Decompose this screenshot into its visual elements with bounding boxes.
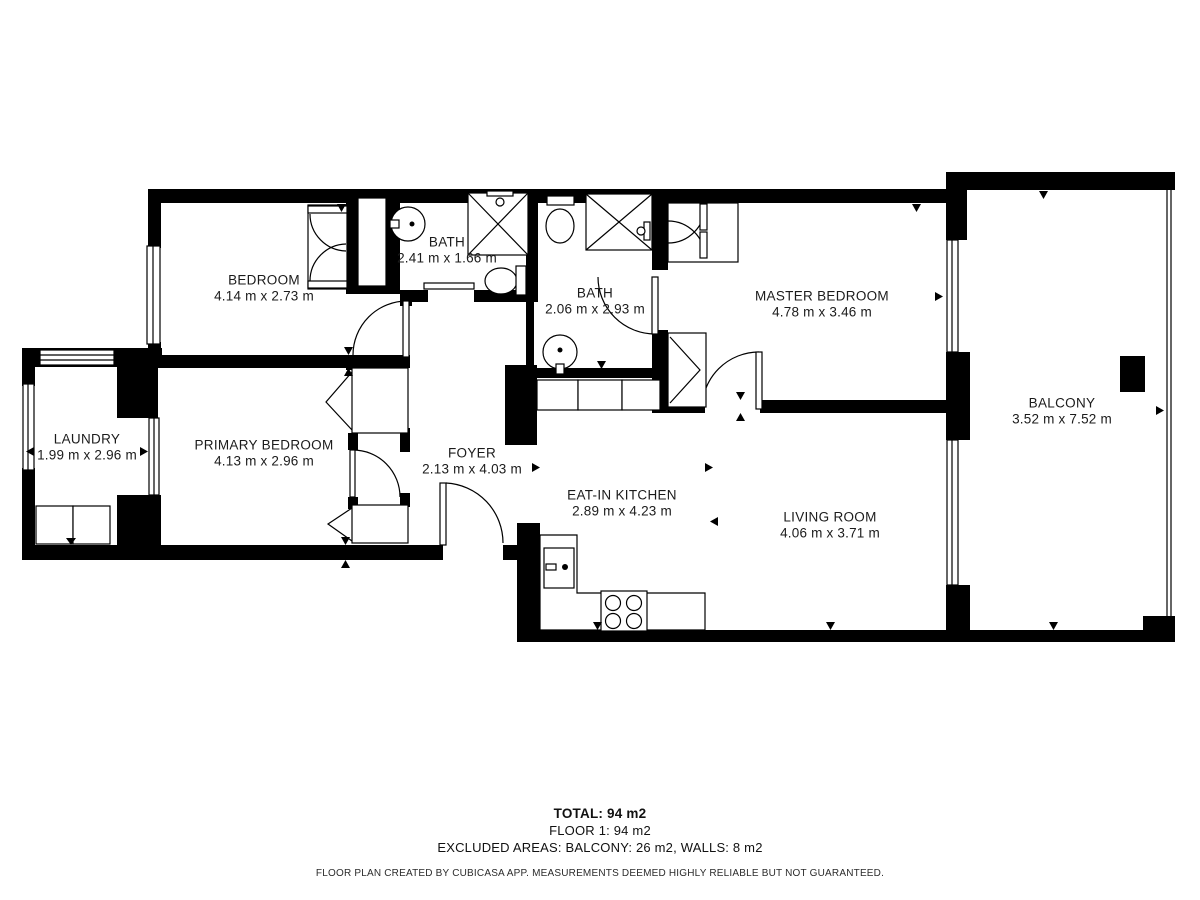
stove-icon (601, 591, 647, 631)
room-dimensions: 4.13 m x 2.96 m (194, 454, 333, 470)
kitchen-counter (540, 535, 705, 631)
primary-closet-bottom (328, 505, 408, 543)
room-label-laundry: LAUNDRY 1.99 m x 2.96 m (37, 432, 137, 465)
primary-bedroom-door (350, 450, 400, 497)
hall-closet (358, 198, 386, 286)
entry-door (440, 483, 503, 545)
room-name: EAT-IN KITCHEN (567, 488, 677, 504)
room-label-bedroom: BEDROOM 4.14 m x 2.73 m (214, 273, 314, 306)
room-label-foyer: FOYER 2.13 m x 4.03 m (422, 446, 522, 479)
bath2-shower-icon (586, 194, 652, 250)
room-dimensions: 1.99 m x 2.96 m (37, 448, 137, 464)
room-label-living-room: LIVING ROOM 4.06 m x 3.71 m (780, 510, 880, 543)
kitchen-cabinets (537, 380, 660, 410)
room-label-bath-1: BATH 2.41 m x 1.66 m (397, 235, 497, 268)
room-label-master-bedroom: MASTER BEDROOM 4.78 m x 3.46 m (755, 289, 889, 322)
room-label-eat-in-kitchen: EAT-IN KITCHEN 2.89 m x 4.23 m (567, 488, 677, 521)
primary-closet-top (326, 368, 408, 433)
laundry-top-window (40, 350, 114, 365)
bath1-toilet-icon (485, 266, 526, 295)
room-dimensions: 2.89 m x 4.23 m (567, 504, 677, 520)
room-dimensions: 4.78 m x 3.46 m (755, 305, 889, 321)
area-summary: TOTAL: 94 m2 FLOOR 1: 94 m2 EXCLUDED ARE… (0, 806, 1200, 855)
room-name: FOYER (422, 446, 522, 462)
room-dimensions: 2.13 m x 4.03 m (422, 462, 522, 478)
bedroom-door (353, 301, 409, 357)
windows (23, 190, 1171, 632)
room-name: MASTER BEDROOM (755, 289, 889, 305)
room-name: BEDROOM (214, 273, 314, 289)
bath-sliding-door (424, 283, 474, 289)
room-name: BATH (397, 235, 497, 251)
master-closet-bottom (668, 333, 706, 407)
room-dimensions: 4.06 m x 3.71 m (780, 526, 880, 542)
total-area: TOTAL: 94 m2 (0, 806, 1200, 821)
floor-plan-drawing (0, 0, 1200, 900)
room-name: PRIMARY BEDROOM (194, 438, 333, 454)
master-closet-top (668, 203, 738, 262)
room-name: LAUNDRY (37, 432, 137, 448)
room-dimensions: 3.52 m x 7.52 m (1012, 412, 1112, 428)
disclaimer-text: FLOOR PLAN CREATED BY CUBICASA APP. MEAS… (0, 868, 1200, 879)
floor-plan-page: BEDROOM 4.14 m x 2.73 m BATH 2.41 m x 1.… (0, 0, 1200, 900)
bath2-toilet-icon (546, 196, 574, 243)
floor-area: FLOOR 1: 94 m2 (0, 823, 1200, 838)
excluded-areas: EXCLUDED AREAS: BALCONY: 26 m2, WALLS: 8… (0, 840, 1200, 855)
laundry-machines-icon (36, 506, 110, 545)
room-dimensions: 4.14 m x 2.73 m (214, 289, 314, 305)
room-name: LIVING ROOM (780, 510, 880, 526)
room-label-balcony: BALCONY 3.52 m x 7.52 m (1012, 396, 1112, 429)
room-label-primary-bedroom: PRIMARY BEDROOM 4.13 m x 2.96 m (194, 438, 333, 471)
room-name: BALCONY (1012, 396, 1112, 412)
master-bedroom-door (702, 352, 762, 409)
room-dimensions: 2.41 m x 1.66 m (397, 251, 497, 267)
room-label-bath-2: BATH 2.06 m x 2.93 m (545, 286, 645, 319)
room-dimensions: 2.06 m x 2.93 m (545, 302, 645, 318)
room-name: BATH (545, 286, 645, 302)
